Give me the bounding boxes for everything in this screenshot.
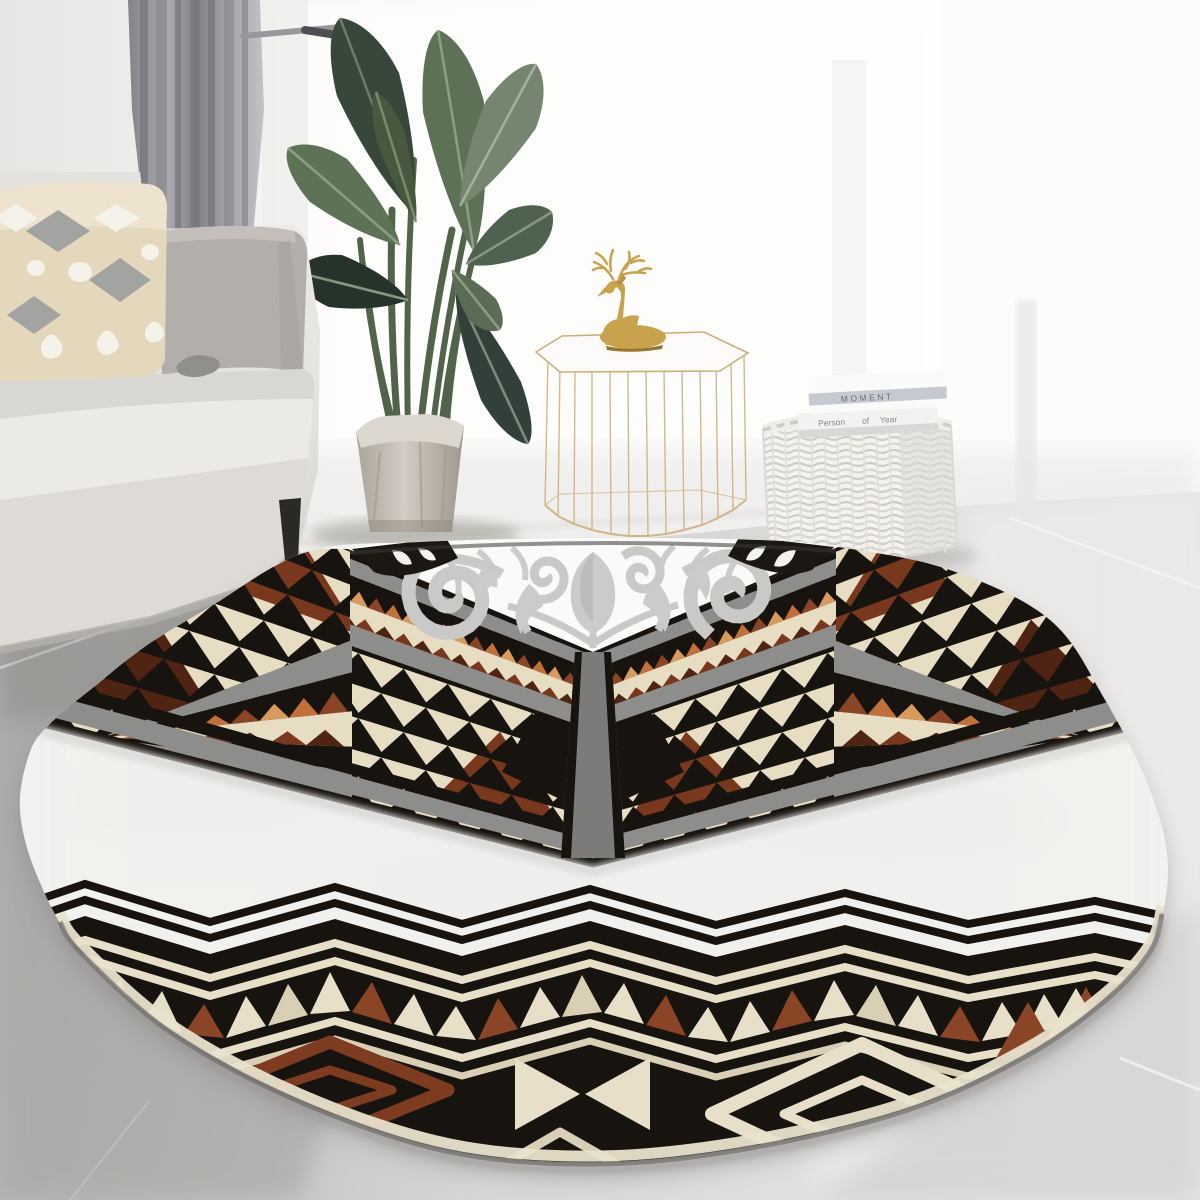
svg-text:of: of [862,415,870,425]
svg-text:Person: Person [818,417,846,428]
svg-text:Year: Year [880,414,898,425]
